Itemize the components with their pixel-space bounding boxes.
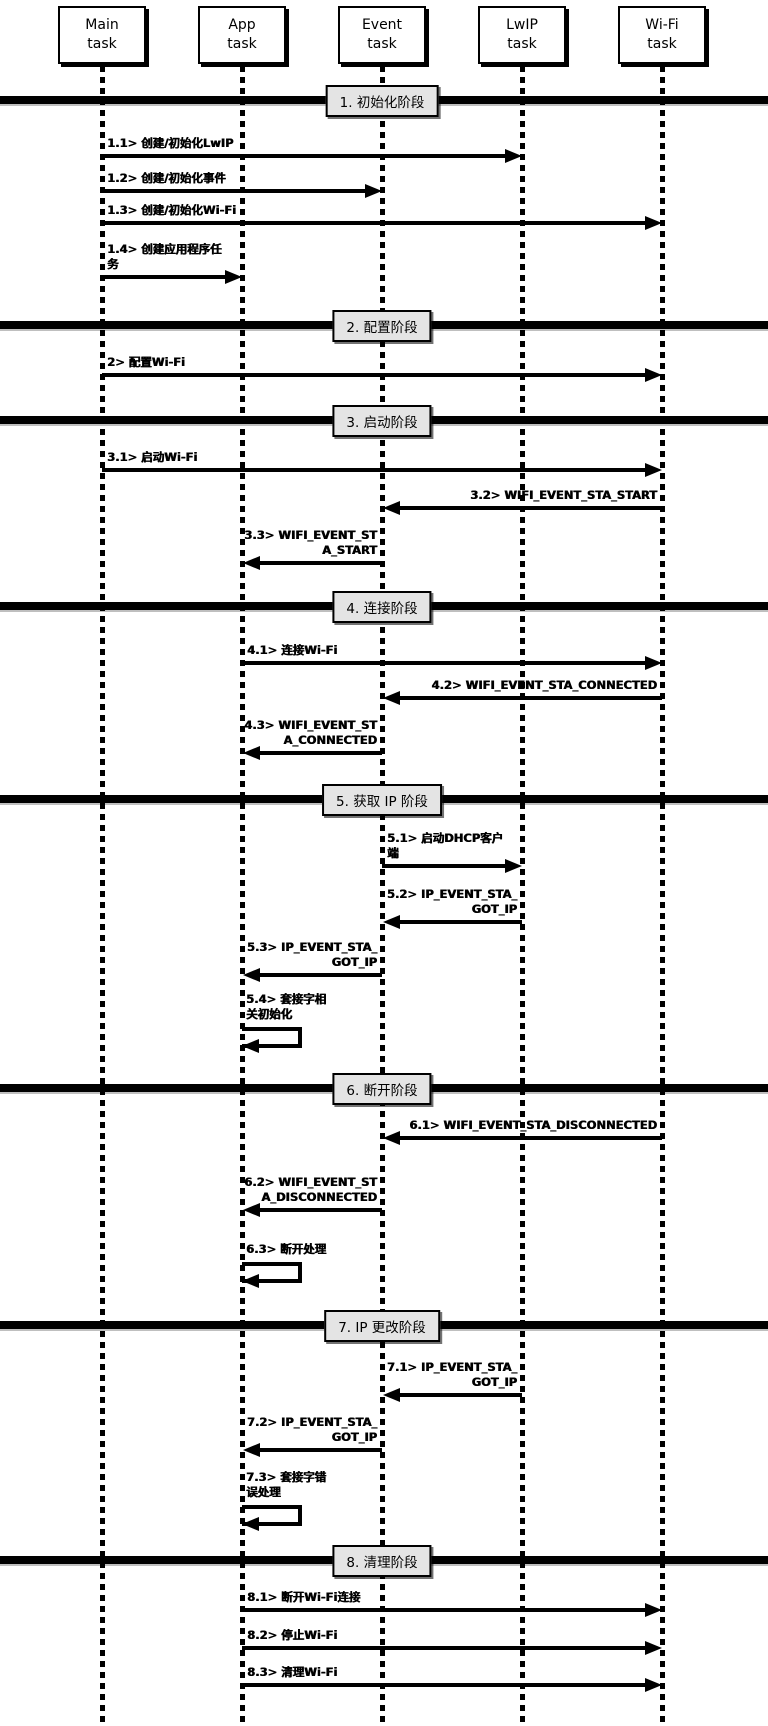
lifeline-app [240,66,245,1726]
lifeline-label: task [367,35,396,54]
message-label-line: 8.1> 断开Wi-Fi连接 [247,1590,360,1605]
message-label: 1.2> 创建/初始化事件 [107,171,226,186]
message-line [102,468,652,472]
message-arrowhead [243,1443,260,1457]
message-label: 7.3> 套接字错误处理 [246,1470,326,1500]
message-label-line: 6.2> WIFI_EVENT_ST [244,1175,377,1190]
message-line [392,696,662,700]
lifeline-box-wifi: Wi-Fitask [618,6,706,64]
phase-label: 1. 初始化阶段 [326,85,439,117]
message-label: 3.2> WIFI_EVENT_STA_START [470,488,657,503]
self-message-arrowhead [242,1039,259,1053]
message-label-line: 5.1> 启动DHCP客户 [387,831,503,846]
lifeline-box-event: Eventtask [338,6,426,64]
message-arrowhead [383,1131,400,1145]
message-label-line: A_DISCONNECTED [244,1190,377,1205]
message-arrowhead [645,368,662,382]
phase-label: 8. 清理阶段 [332,1545,431,1577]
message-label-line: 务 [107,257,222,272]
lifeline-wifi [660,66,665,1726]
message-line [102,373,652,377]
message-label-line: 8.2> 停止Wi-Fi [247,1628,337,1643]
message-line [252,973,382,977]
message-label-line: 7.3> 套接字错 [246,1470,326,1485]
message-arrowhead [243,968,260,982]
message-arrowhead [243,746,260,760]
message-line [242,1608,652,1612]
message-line [252,561,382,565]
message-arrowhead [383,691,400,705]
lifeline-lwip [520,66,525,1726]
message-label-line: 5.2> IP_EVENT_STA_ [387,887,517,902]
message-line [392,920,522,924]
message-line [252,751,382,755]
phase-label: 2. 配置阶段 [332,310,431,342]
message-label: 5.3> IP_EVENT_STA_GOT_IP [247,940,377,970]
message-label: 1.3> 创建/初始化Wi-Fi [107,203,236,218]
message-label-line: 8.3> 清理Wi-Fi [247,1665,337,1680]
message-label: 7.2> IP_EVENT_STA_GOT_IP [247,1415,377,1445]
message-label-line: 7.2> IP_EVENT_STA_ [247,1415,377,1430]
message-label-line: 5.3> IP_EVENT_STA_ [247,940,377,955]
message-label-line: 5.4> 套接字相 [246,992,326,1007]
message-arrowhead [383,501,400,515]
message-label-line: 6.3> 断开处理 [246,1242,326,1257]
message-label-line: 1.1> 创建/初始化LwIP [107,136,233,151]
message-label: 3.3> WIFI_EVENT_STA_START [244,528,377,558]
lifeline-label: task [507,35,536,54]
message-line [252,1208,382,1212]
message-arrowhead [243,556,260,570]
message-arrowhead [645,1678,662,1692]
phase-label: 7. IP 更改阶段 [324,1310,440,1342]
lifeline-label: Wi-Fi [645,16,678,35]
message-line [392,1136,662,1140]
lifeline-label: task [87,35,116,54]
lifeline-label: Event [362,16,402,35]
lifeline-label: LwIP [506,16,538,35]
message-label: 5.4> 套接字相关初始化 [246,992,326,1022]
lifeline-label: Main [85,16,118,35]
lifeline-box-main: Maintask [58,6,146,64]
message-arrowhead [505,149,522,163]
message-label-line: 1.2> 创建/初始化事件 [107,171,226,186]
message-label-line: GOT_IP [387,902,517,917]
message-arrowhead [645,656,662,670]
message-label: 8.3> 清理Wi-Fi [247,1665,337,1680]
message-arrowhead [383,915,400,929]
message-label-line: 4.1> 连接Wi-Fi [247,643,337,658]
message-line [102,275,232,279]
message-label-line: 4.2> WIFI_EVENT_STA_CONNECTED [431,678,657,693]
message-arrowhead [365,184,382,198]
message-line [392,506,662,510]
message-label-line: 6.1> WIFI_EVENT_STA_DISCONNECTED [409,1118,657,1133]
message-line [252,1448,382,1452]
message-label: 8.2> 停止Wi-Fi [247,1628,337,1643]
message-label-line: 关初始化 [246,1007,326,1022]
message-arrowhead [645,1641,662,1655]
message-arrowhead [243,1203,260,1217]
message-label: 4.1> 连接Wi-Fi [247,643,337,658]
message-label-line: 7.1> IP_EVENT_STA_ [387,1360,517,1375]
message-line [382,864,512,868]
self-message-arrowhead [242,1517,259,1531]
lifeline-label: task [647,35,676,54]
message-label: 1.1> 创建/初始化LwIP [107,136,233,151]
message-line [242,661,652,665]
message-label-line: GOT_IP [387,1375,517,1390]
phase-label: 6. 断开阶段 [332,1073,431,1105]
lifeline-box-lwip: LwIPtask [478,6,566,64]
message-label-line: 2> 配置Wi-Fi [107,355,185,370]
phase-label: 5. 获取 IP 阶段 [322,784,442,816]
message-arrowhead [645,463,662,477]
self-message-arrowhead [242,1274,259,1288]
lifeline-box-app: Apptask [198,6,286,64]
message-label-line: A_START [244,543,377,558]
message-label: 5.1> 启动DHCP客户端 [387,831,503,861]
message-line [102,154,512,158]
message-label-line: GOT_IP [247,955,377,970]
message-label: 2> 配置Wi-Fi [107,355,185,370]
message-label-line: 3.3> WIFI_EVENT_ST [244,528,377,543]
message-label-line: GOT_IP [247,1430,377,1445]
message-line [242,1683,652,1687]
message-label: 4.3> WIFI_EVENT_STA_CONNECTED [244,718,377,748]
wifi-sequence-diagram: MaintaskApptaskEventtaskLwIPtaskWi-Fitas… [0,0,768,1726]
message-line [102,221,652,225]
message-label-line: 4.3> WIFI_EVENT_ST [244,718,377,733]
message-label: 6.2> WIFI_EVENT_STA_DISCONNECTED [244,1175,377,1205]
message-label-line: A_CONNECTED [244,733,377,748]
message-label-line: 误处理 [246,1485,326,1500]
message-label: 6.3> 断开处理 [246,1242,326,1257]
message-arrowhead [225,270,242,284]
message-arrowhead [383,1388,400,1402]
message-label: 3.1> 启动Wi-Fi [107,450,197,465]
message-label-line: 3.2> WIFI_EVENT_STA_START [470,488,657,503]
phase-label: 3. 启动阶段 [332,405,431,437]
message-line [102,189,372,193]
message-label-line: 1.4> 创建应用程序任 [107,242,222,257]
message-line [242,1646,652,1650]
message-label-line: 3.1> 启动Wi-Fi [107,450,197,465]
message-label: 6.1> WIFI_EVENT_STA_DISCONNECTED [409,1118,657,1133]
message-line [392,1393,522,1397]
lifeline-main [100,66,105,1726]
message-label: 5.2> IP_EVENT_STA_GOT_IP [387,887,517,917]
message-label-line: 端 [387,846,503,861]
message-arrowhead [645,216,662,230]
message-label: 4.2> WIFI_EVENT_STA_CONNECTED [431,678,657,693]
message-label: 8.1> 断开Wi-Fi连接 [247,1590,360,1605]
message-arrowhead [505,859,522,873]
message-label: 7.1> IP_EVENT_STA_GOT_IP [387,1360,517,1390]
phase-label: 4. 连接阶段 [332,591,431,623]
message-arrowhead [645,1603,662,1617]
lifeline-label: task [227,35,256,54]
message-label: 1.4> 创建应用程序任务 [107,242,222,272]
message-label-line: 1.3> 创建/初始化Wi-Fi [107,203,236,218]
lifeline-label: App [228,16,255,35]
